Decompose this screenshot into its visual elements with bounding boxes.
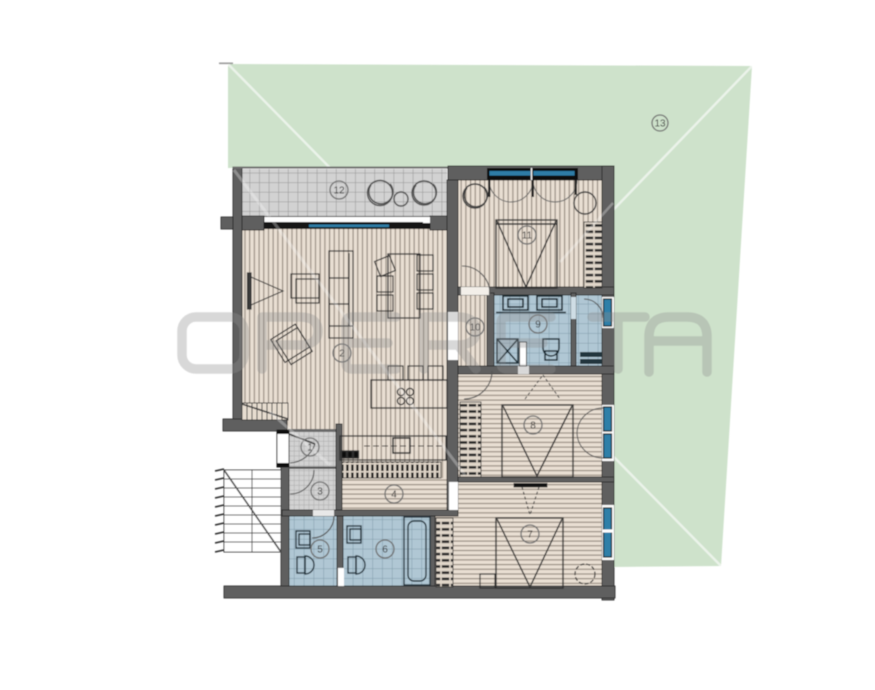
svg-text:8: 8 [530,421,536,432]
svg-text:7: 7 [527,530,533,541]
svg-text:11: 11 [522,231,533,242]
svg-text:12: 12 [333,186,345,197]
svg-text:5: 5 [317,545,323,556]
svg-text:6: 6 [382,545,388,556]
svg-text:13: 13 [654,119,666,130]
svg-text:4: 4 [391,490,397,501]
svg-text:3: 3 [317,487,323,498]
